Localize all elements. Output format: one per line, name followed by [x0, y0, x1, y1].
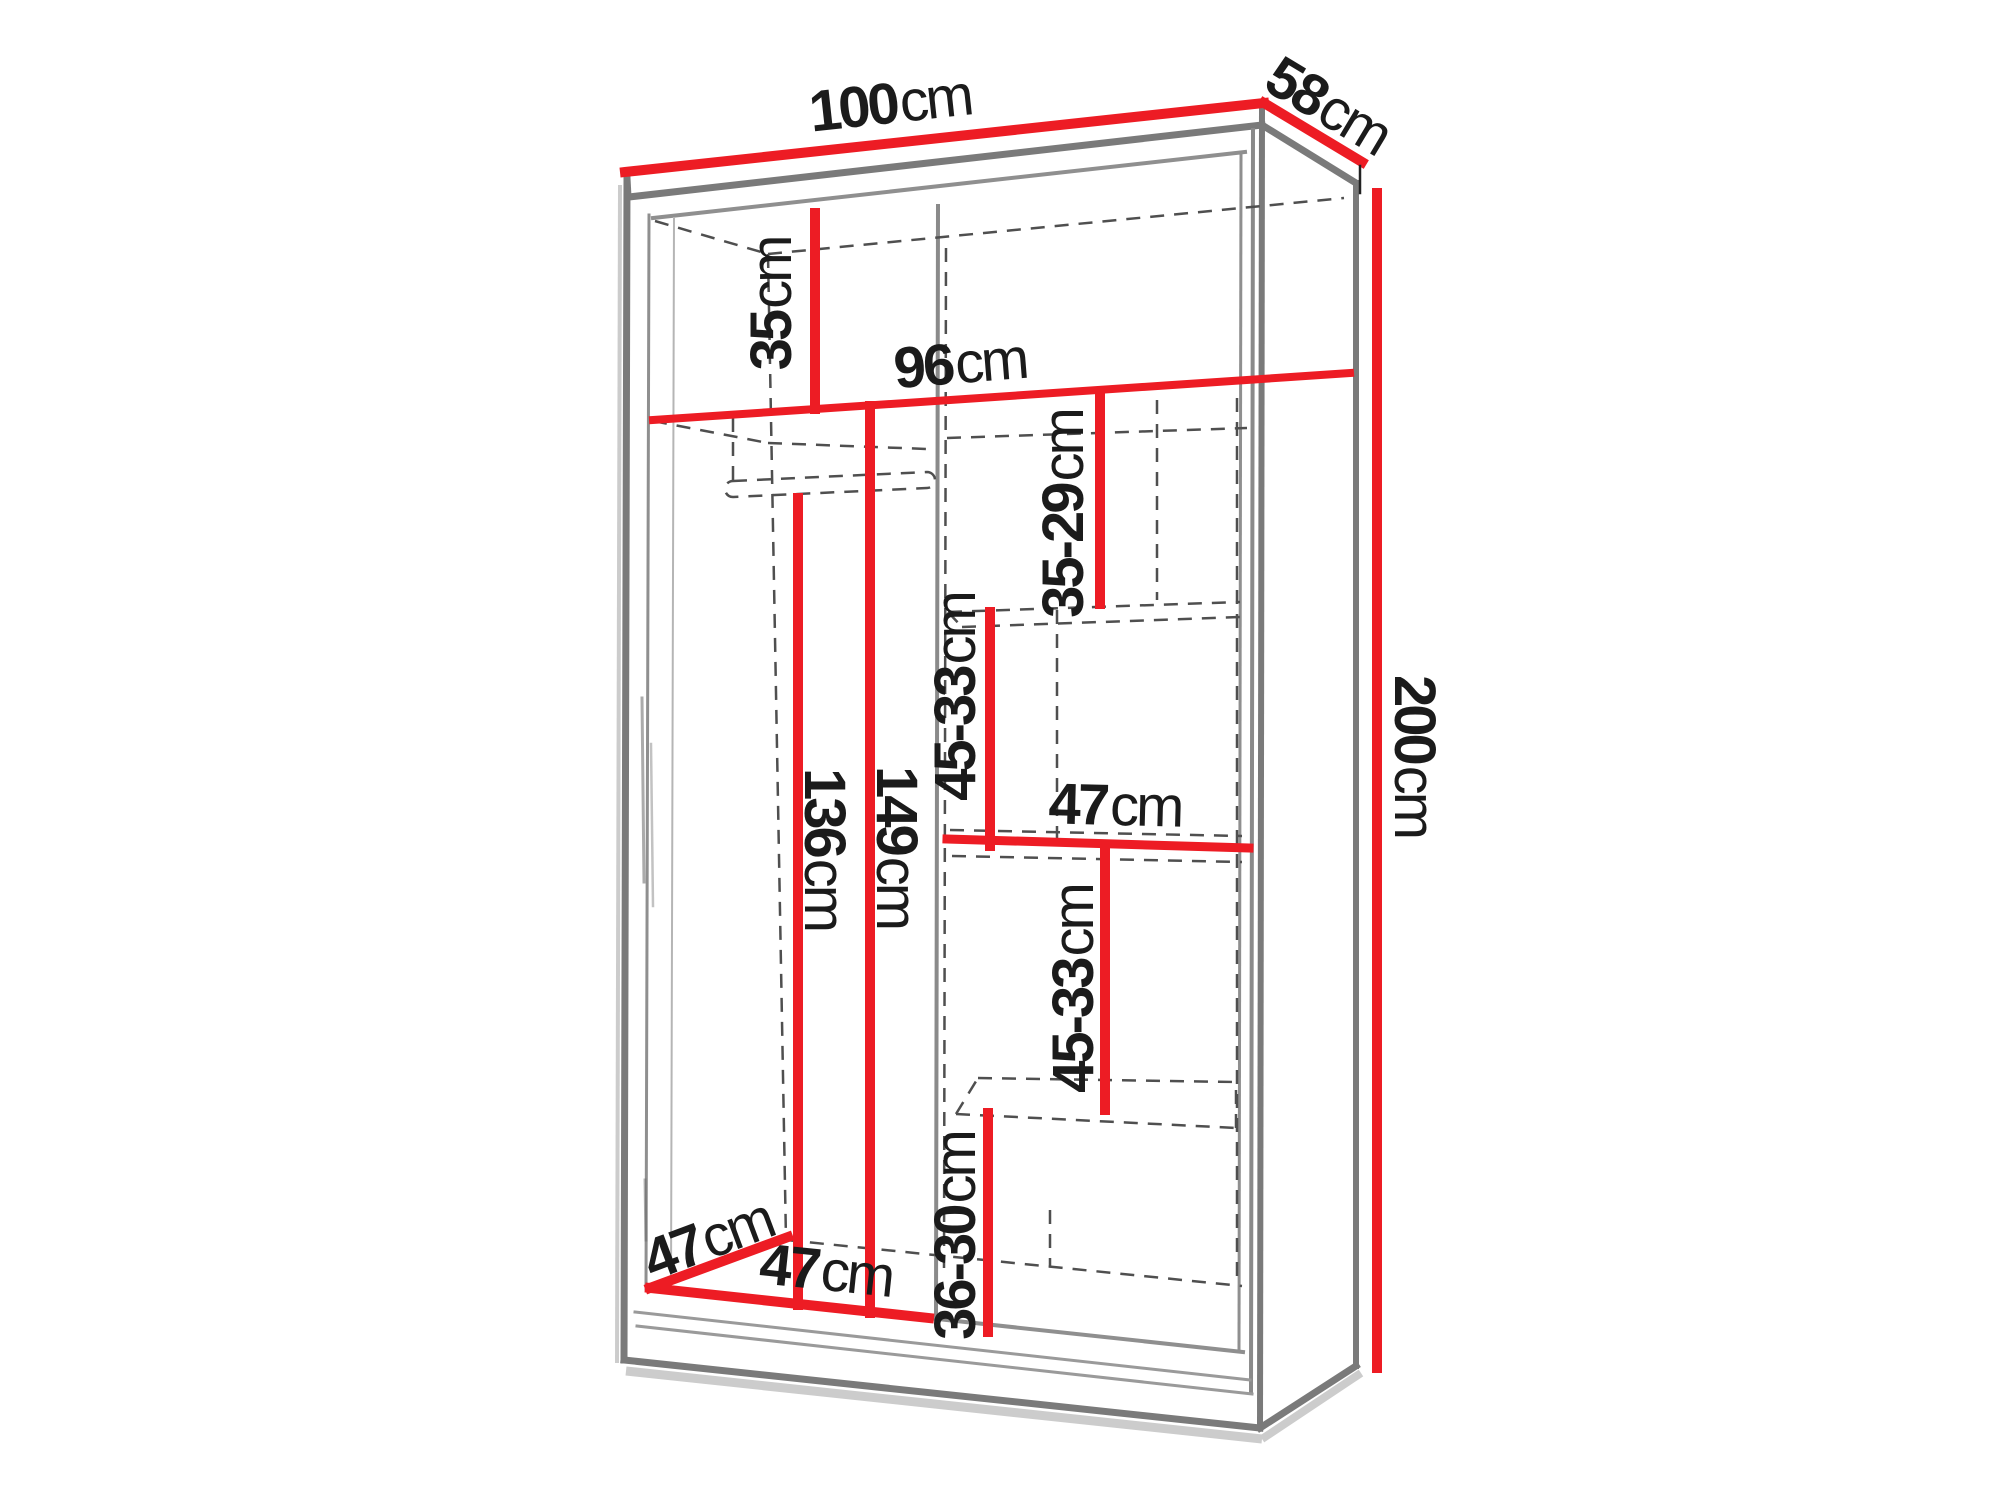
- left-door-seam: [671, 218, 674, 1290]
- top-shelf-back-left-dashed: [768, 443, 927, 449]
- total-height-label: 200cm: [1385, 675, 1443, 837]
- dim-value: 96: [891, 332, 955, 401]
- dim-unit: cm: [1041, 885, 1106, 956]
- dim-value: 35: [739, 312, 804, 371]
- ceiling-back-edge-dashed: [768, 198, 1344, 254]
- dim-unit: cm: [739, 238, 804, 309]
- dim-unit: cm: [1031, 410, 1096, 481]
- right-frame-line: [1251, 130, 1253, 1392]
- dim-unit: cm: [818, 1238, 896, 1310]
- left-outer-edge: [624, 178, 627, 1360]
- gap-45-33-upper-label: 45-33cm: [927, 593, 985, 801]
- gap-36-30-label: 36-30cm: [927, 1132, 985, 1340]
- dim-unit: cm: [1382, 766, 1447, 837]
- dim-value: 100: [806, 70, 900, 144]
- dim-unit: cm: [792, 859, 857, 930]
- right-outer-edge: [1260, 107, 1262, 1428]
- top-shelf-left-depth-dashed: [653, 421, 768, 443]
- shadow-bottom: [626, 1371, 1262, 1439]
- clothes-rail-dashed: [725, 472, 935, 497]
- gap-45-33-lower-label: 45-33cm: [1045, 885, 1103, 1093]
- shelf2-back-dashed: [962, 617, 1240, 627]
- interior-width-label: 96cm: [891, 330, 1028, 398]
- back-left-corner-dashed: [768, 254, 786, 1240]
- hanging-height-149-label: 149cm: [867, 766, 925, 928]
- shelf-width-label: 47cm: [1048, 775, 1182, 836]
- left-frame-highlight-2: [651, 744, 653, 906]
- side-bottom-edge: [1260, 1366, 1356, 1428]
- left-inner-edge: [646, 215, 649, 1289]
- dim-value: 36-30: [923, 1206, 988, 1339]
- dim-value: 47: [1048, 771, 1108, 838]
- dim-unit: cm: [864, 857, 929, 928]
- shelf3-bottom-dashed: [952, 856, 1242, 862]
- dim-value: 45-33: [923, 667, 988, 800]
- dim-unit: cm: [923, 593, 988, 664]
- wardrobe-dimension-diagram: 100cm 58cm 200cm 35cm 96cm 35-29cm 45-33…: [0, 0, 2000, 1500]
- dim-unit: cm: [952, 326, 1028, 397]
- shelf4-front-dashed: [956, 1114, 1236, 1128]
- dim-unit: cm: [923, 1132, 988, 1203]
- hanging-height-136-label: 136cm: [795, 768, 853, 930]
- top-gap-label: 35cm: [743, 238, 801, 371]
- dim-value: 45-33: [1041, 959, 1106, 1092]
- dim-unit: cm: [896, 62, 974, 134]
- dim-value: 136: [792, 768, 857, 856]
- dim-value: 149: [864, 766, 929, 854]
- wardrobe-drawing: [0, 0, 2000, 1500]
- dim-value: 200: [1382, 675, 1447, 763]
- right-inner-edge: [1239, 152, 1241, 1352]
- dim-value: 35-29: [1031, 484, 1096, 617]
- dim-unit: cm: [1109, 773, 1182, 840]
- shadow-bottom-side: [1262, 1373, 1361, 1439]
- shadow-left: [617, 185, 620, 1363]
- shelf4-left-depth-dashed: [956, 1078, 978, 1114]
- left-frame-highlight-1: [642, 698, 644, 882]
- gap-35-29-label: 35-29cm: [1035, 410, 1093, 618]
